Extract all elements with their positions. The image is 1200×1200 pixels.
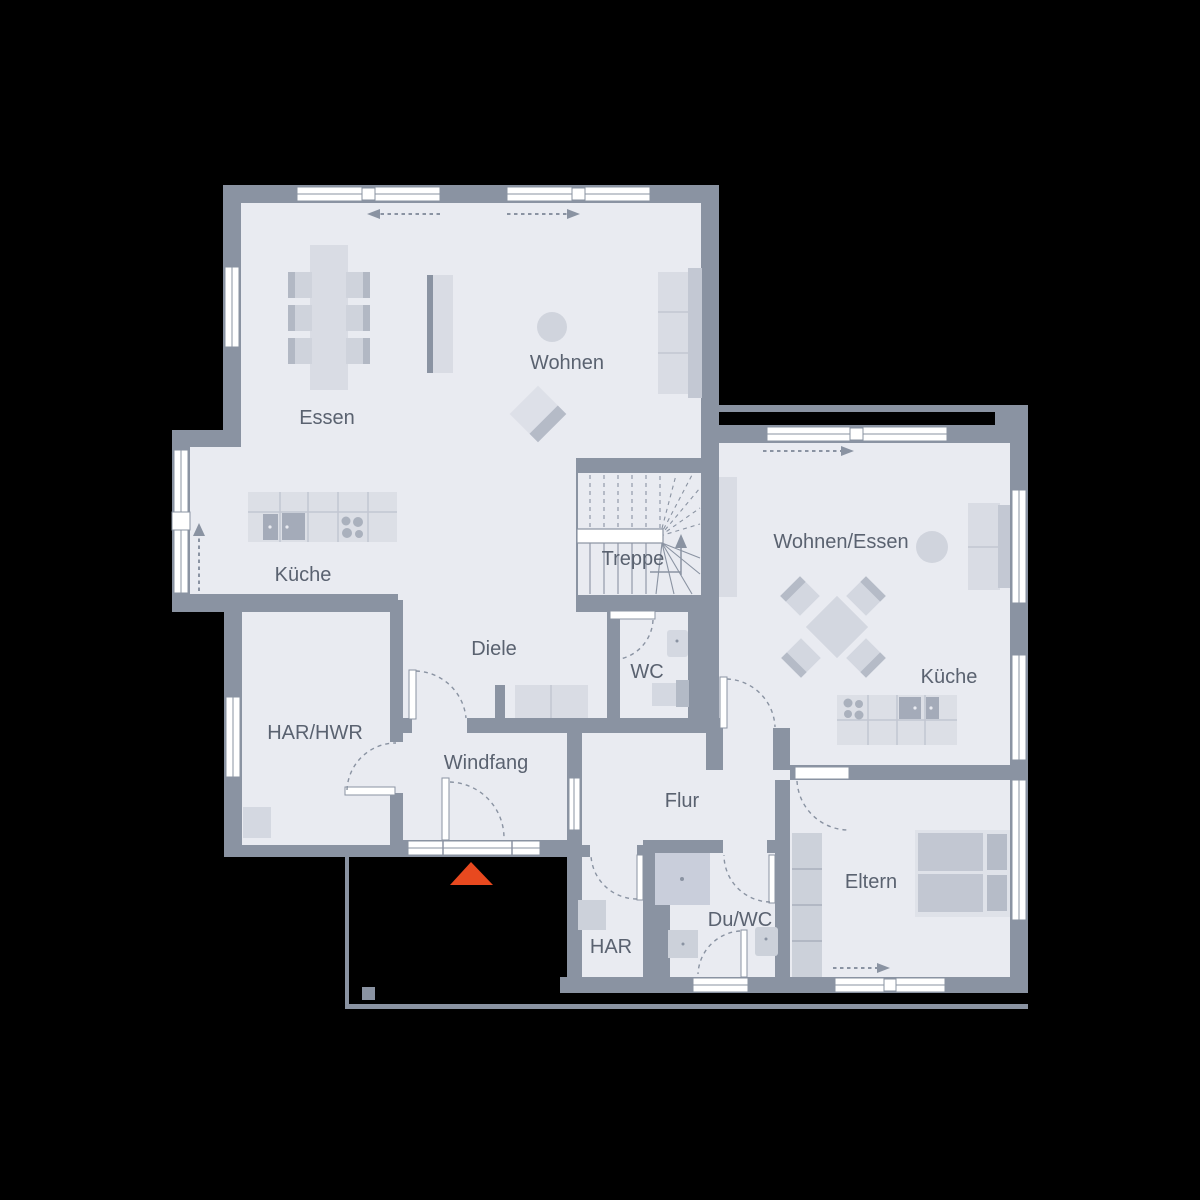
kitchen-right	[837, 695, 957, 745]
door-leaf-entrance	[442, 778, 449, 840]
diele-sideboard	[515, 685, 588, 718]
label-kueche-rechts: Küche	[921, 666, 978, 688]
sliding-window-eltern	[835, 978, 945, 992]
label-wohnen-essen: Wohnen/Essen	[773, 531, 908, 553]
door-leaf-har	[637, 855, 643, 900]
wc-sink	[652, 683, 676, 706]
stair-cut-bar	[577, 529, 663, 543]
door-leaf-wohnen-essen-south	[795, 767, 849, 779]
label-har-hwr: HAR/HWR	[267, 722, 363, 744]
label-har: HAR	[590, 936, 632, 958]
label-flur: Flur	[665, 790, 700, 812]
window-right-wall-1	[1012, 490, 1026, 603]
sliding-window-wohnen	[507, 187, 650, 201]
sideboard-left-wall	[719, 477, 737, 597]
window-har-hwr	[226, 697, 240, 777]
dining-table	[310, 245, 348, 390]
tv-board	[427, 275, 453, 373]
fridge-right	[899, 697, 921, 719]
bed-eltern	[915, 830, 1010, 917]
label-eltern: Eltern	[845, 871, 897, 893]
window-right-wall-3	[1012, 780, 1026, 920]
du-wc-toilet	[755, 927, 778, 956]
label-kueche-links: Küche	[275, 564, 332, 586]
fridge	[282, 513, 305, 540]
door-leaf-diele-windfang	[409, 670, 416, 719]
floor-plan: Essen Wohnen Küche Treppe Diele WC HAR/H…	[0, 0, 1200, 1200]
glass-panel-windfang-flur	[569, 778, 580, 830]
door-leaf-du-wc	[769, 855, 775, 903]
sliding-window-essen	[297, 187, 440, 201]
kitchen-left	[248, 492, 397, 542]
toilet	[667, 630, 688, 657]
door-du-wc-bottom	[693, 978, 748, 992]
side-table-right	[916, 531, 948, 563]
door-leaf-du-wc-bottom	[741, 930, 747, 977]
label-wc: WC	[630, 661, 663, 683]
wc-shaft	[676, 680, 689, 707]
door-leaf-har-hwr	[345, 787, 395, 795]
entrance-marker	[450, 862, 493, 885]
label-treppe: Treppe	[602, 548, 665, 570]
label-wohnen: Wohnen	[530, 352, 604, 374]
har-unit	[578, 900, 606, 930]
entrance-door-assembly	[408, 841, 540, 855]
sliding-window-kueche-left	[172, 450, 190, 593]
sliding-window-wohnen-essen-top	[767, 427, 947, 441]
label-du-wc: Du/WC	[708, 909, 772, 931]
door-leaf-wc	[610, 611, 655, 619]
door-leaf-wohnen-essen-west	[720, 677, 727, 728]
floor-plan-page: Essen Wohnen Küche Treppe Diele WC HAR/H…	[0, 0, 1200, 1200]
sofa-wohnen	[658, 268, 702, 398]
wardrobe-eltern	[792, 833, 822, 977]
sofa-right	[968, 503, 1010, 590]
window-essen-left	[225, 267, 239, 347]
label-windfang: Windfang	[444, 752, 529, 774]
label-diele: Diele	[471, 638, 517, 660]
window-right-wall-2	[1012, 655, 1026, 760]
har-hwr-unit	[243, 807, 271, 838]
label-essen: Essen	[299, 407, 355, 429]
side-table-wohnen	[537, 312, 567, 342]
